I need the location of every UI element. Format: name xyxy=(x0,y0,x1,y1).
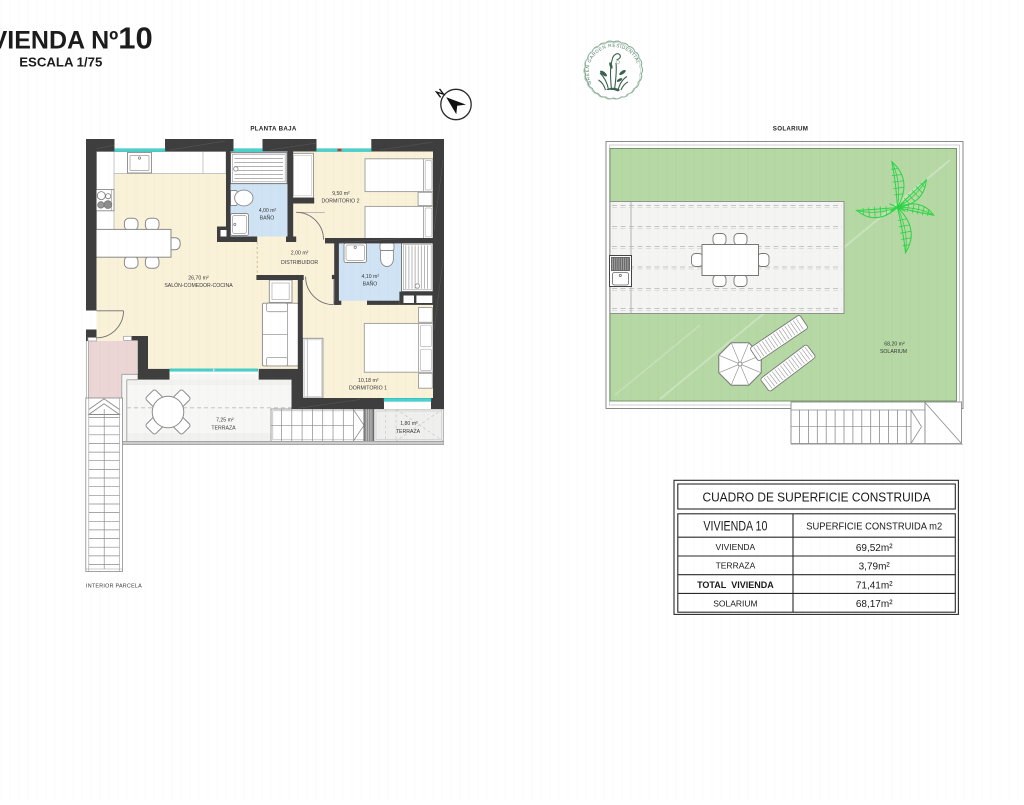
svg-text:SOLARIUM: SOLARIUM xyxy=(880,349,907,355)
svg-text:1,80 m²: 1,80 m² xyxy=(400,421,418,427)
svg-text:68,17m²: 68,17m² xyxy=(856,599,893,610)
svg-text:4,00 m²: 4,00 m² xyxy=(259,208,277,214)
svg-text:SOLARIUM: SOLARIUM xyxy=(773,126,808,133)
svg-text:ESCALA 1/75: ESCALA 1/75 xyxy=(19,55,102,70)
svg-text:DORMITORIO 1: DORMITORIO 1 xyxy=(349,386,387,392)
svg-text:VIVIENDA Nº10: VIVIENDA Nº10 xyxy=(0,21,153,56)
svg-text:VIVIENDA 10: VIVIENDA 10 xyxy=(703,518,767,534)
svg-text:BAÑO: BAÑO xyxy=(260,214,275,221)
svg-text:4,10 m²: 4,10 m² xyxy=(362,274,380,280)
svg-text:SOLARIUM: SOLARIUM xyxy=(713,599,757,609)
svg-text:69,52m²: 69,52m² xyxy=(856,543,893,554)
svg-text:3,79m²: 3,79m² xyxy=(859,562,891,573)
svg-text:SALÓN-COMEDOR-COCINA: SALÓN-COMEDOR-COCINA xyxy=(164,282,233,289)
svg-text:DISTRIBUIDOR: DISTRIBUIDOR xyxy=(281,260,318,266)
svg-text:TERRAZA: TERRAZA xyxy=(716,561,756,571)
svg-text:TERRAZA: TERRAZA xyxy=(396,429,421,435)
svg-text:TERRAZA: TERRAZA xyxy=(211,425,236,431)
svg-text:BAÑO: BAÑO xyxy=(363,281,378,288)
svg-text:DORMITORIO 2: DORMITORIO 2 xyxy=(322,198,360,204)
svg-text:VIVIENDA: VIVIENDA xyxy=(716,542,756,552)
svg-text:10,18 m²: 10,18 m² xyxy=(358,378,379,384)
svg-text:CUADRO DE SUPERFICIE CONSTRUID: CUADRO DE SUPERFICIE CONSTRUIDA xyxy=(703,491,932,505)
svg-text:PLANTA BAJA: PLANTA BAJA xyxy=(250,126,296,133)
svg-text:26,70 m²: 26,70 m² xyxy=(188,275,209,281)
svg-text:68,20 m²: 68,20 m² xyxy=(884,341,905,347)
svg-text:7,25 m²: 7,25 m² xyxy=(216,417,234,423)
svg-text:SUPERFICIE CONSTRUIDA m2: SUPERFICIE CONSTRUIDA m2 xyxy=(806,521,942,533)
svg-text:TOTAL VIVIENDA: TOTAL VIVIENDA xyxy=(697,580,774,590)
svg-text:INTERIOR PARCELA: INTERIOR PARCELA xyxy=(86,584,142,590)
svg-text:2,00 m²: 2,00 m² xyxy=(291,251,309,257)
svg-text:71,41m²: 71,41m² xyxy=(856,580,893,591)
svg-text:9,50 m²: 9,50 m² xyxy=(332,191,350,197)
